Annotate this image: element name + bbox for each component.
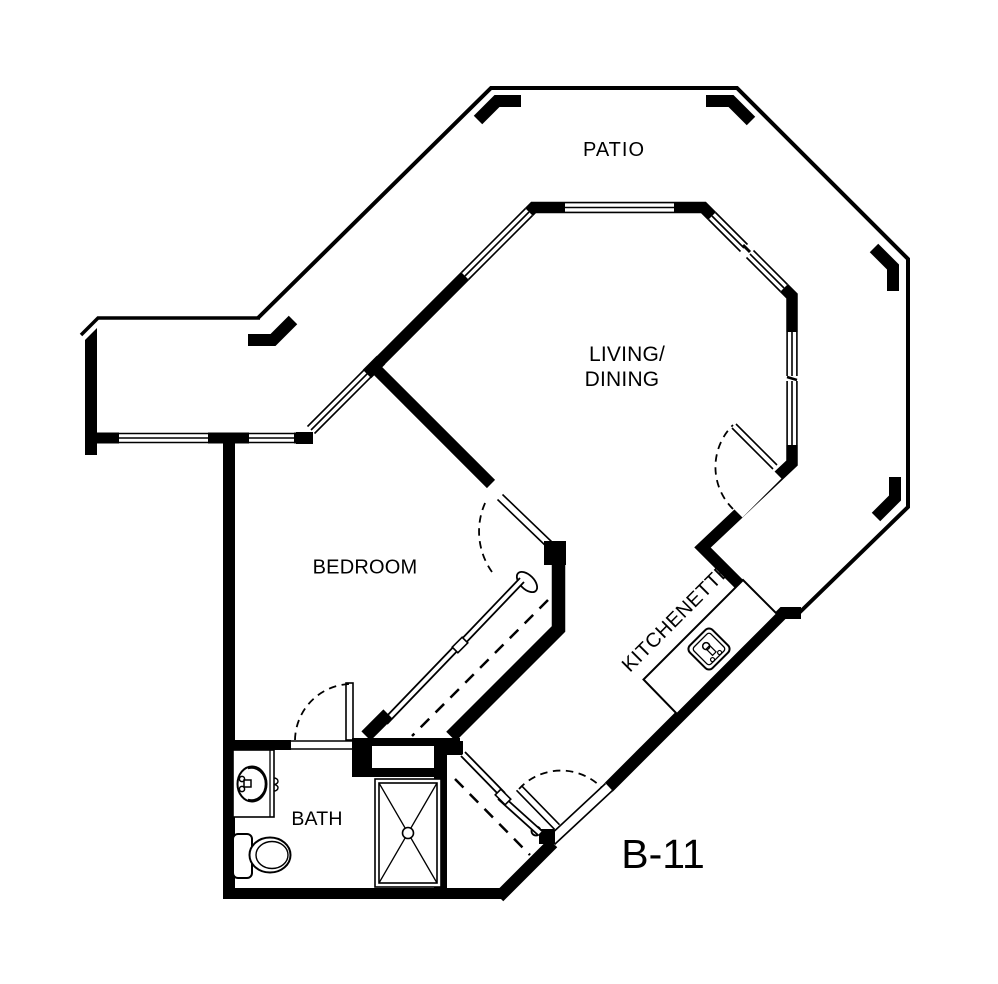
svg-text:B-11: B-11 [621, 831, 705, 877]
svg-text:BATH: BATH [291, 808, 342, 830]
svg-text:BEDROOM: BEDROOM [313, 557, 418, 579]
svg-text:DINING: DINING [585, 368, 660, 391]
svg-text:PATIO: PATIO [583, 139, 645, 161]
svg-text:LIVING/: LIVING/ [589, 343, 665, 366]
